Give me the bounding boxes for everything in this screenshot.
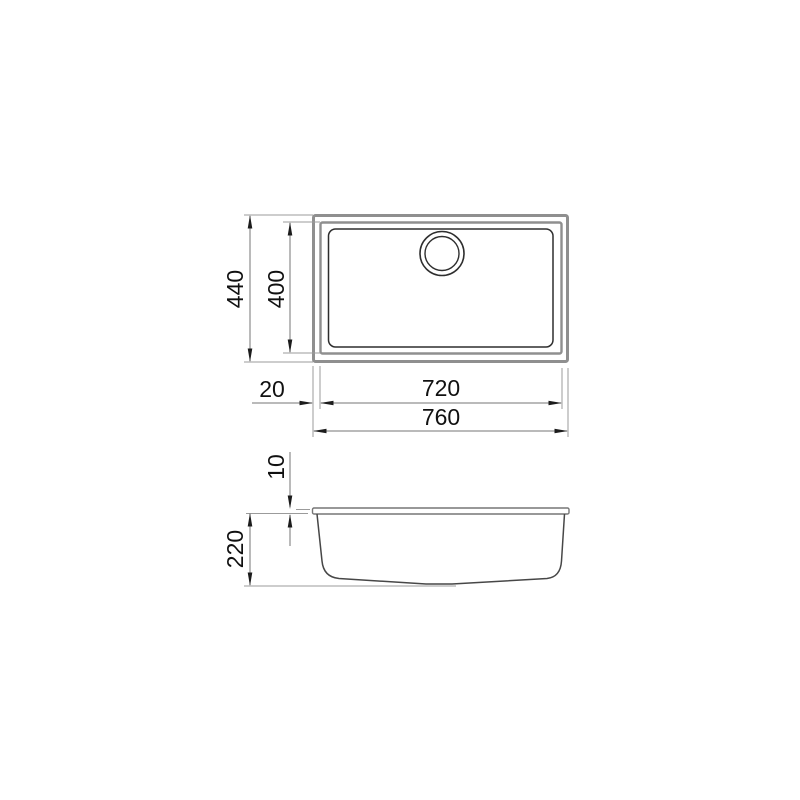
arrow-right-icon — [555, 429, 569, 434]
arrow-down-icon — [288, 340, 293, 354]
dim-label-bowl-height: 400 — [263, 270, 289, 308]
dim-depth-220: 220 — [222, 513, 456, 586]
arrow-up-icon — [248, 513, 253, 527]
arrow-down-icon — [248, 349, 253, 363]
dim-rim-thickness-10: 10 — [246, 452, 310, 546]
dim-label-depth: 220 — [222, 530, 248, 568]
dim-label-bowl-width: 720 — [422, 375, 460, 401]
arrow-up-icon — [288, 222, 293, 236]
side-view — [313, 508, 570, 584]
sink-rim-edge — [321, 223, 562, 354]
arrow-down-icon — [288, 496, 293, 510]
rim-profile — [313, 508, 570, 514]
drain-outer-circle — [420, 232, 464, 276]
dim-label-outer-width: 760 — [422, 404, 460, 430]
dim-label-edge-offset: 20 — [259, 376, 285, 402]
arrow-left-icon — [320, 401, 334, 406]
dim-label-outer-height: 440 — [222, 270, 248, 308]
sink-drawing-svg: 440 400 20 720 760 — [0, 0, 800, 800]
bowl-profile — [317, 514, 565, 584]
sink-outer-edge — [314, 216, 568, 362]
dim-label-rim-thickness: 10 — [263, 454, 289, 480]
dim-bowl-height-400: 400 — [263, 222, 320, 353]
sink-bowl-edge — [329, 229, 554, 347]
arrow-up-icon — [288, 514, 293, 528]
technical-drawing-page: 440 400 20 720 760 — [0, 0, 800, 800]
arrow-left-icon — [313, 429, 327, 434]
arrow-right-icon — [549, 401, 563, 406]
drain-inner-circle — [425, 237, 459, 271]
arrow-up-icon — [248, 215, 253, 229]
dim-bowl-width-720: 720 — [320, 375, 562, 405]
arrow-down-icon — [248, 573, 253, 587]
dim-outer-width-760: 760 — [313, 404, 568, 433]
top-view — [314, 216, 568, 362]
arrow-right-icon — [300, 401, 314, 406]
dim-edge-offset-20: 20 — [252, 376, 313, 405]
